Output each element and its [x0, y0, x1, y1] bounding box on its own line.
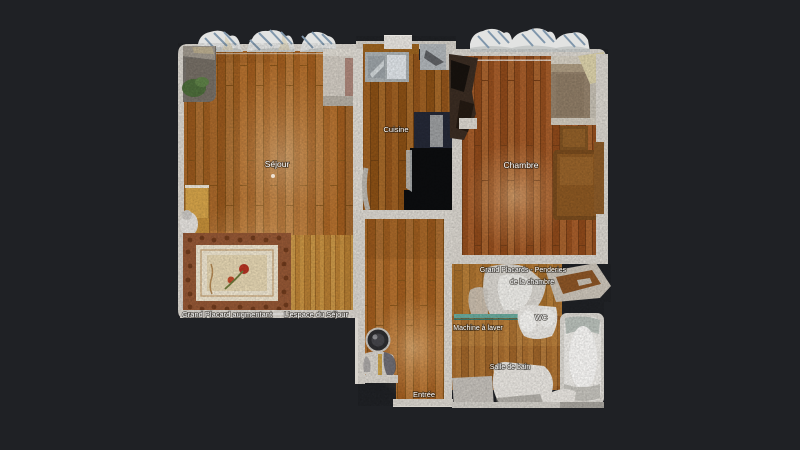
svg-text:Grand Placard augmentant: Grand Placard augmentant — [182, 310, 273, 319]
svg-text:de la chambre: de la chambre — [510, 279, 554, 286]
svg-text:Séjour: Séjour — [265, 159, 290, 169]
svg-text:Chambre: Chambre — [504, 160, 539, 170]
svg-text:L'espace du Séjour: L'espace du Séjour — [284, 310, 348, 319]
svg-text:Entrée: Entrée — [413, 390, 435, 399]
svg-text:Machine à laver: Machine à laver — [453, 325, 503, 332]
svg-text:WC: WC — [535, 313, 548, 322]
svg-text:Salle de bain: Salle de bain — [490, 364, 531, 371]
svg-text:Cuisine: Cuisine — [383, 125, 408, 134]
svg-text:Grand Placards - Penderies: Grand Placards - Penderies — [480, 267, 567, 274]
